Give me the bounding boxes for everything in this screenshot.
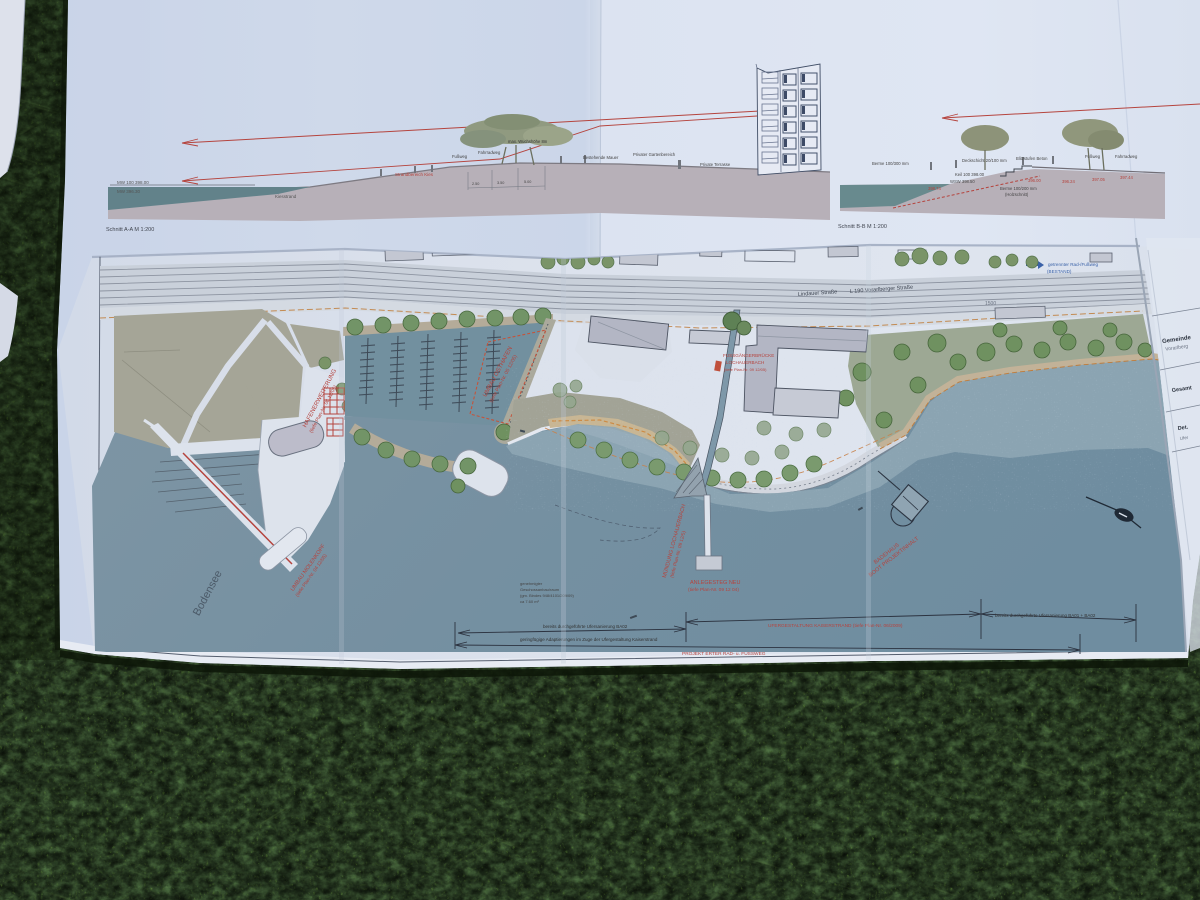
svg-text:(tiefe Plan-Nr. 09 12 04): (tiefe Plan-Nr. 09 12 04): [688, 587, 739, 593]
svg-text:(BESTAND): (BESTAND): [1047, 269, 1072, 274]
svg-text:ca 7.60 m²: ca 7.60 m²: [520, 599, 540, 604]
svg-text:Strandbereich Kies: Strandbereich Kies: [395, 172, 434, 177]
svg-text:Schnitt A-A M 1:200: Schnitt A-A M 1:200: [106, 227, 154, 233]
svg-text:396.00: 396.00: [1028, 178, 1041, 183]
svg-text:Geschossanbau/raum: Geschossanbau/raum: [520, 587, 560, 592]
svg-text:2.50: 2.50: [472, 182, 479, 186]
svg-text:Schnitt B-B M 1:200: Schnitt B-B M 1:200: [838, 224, 887, 230]
svg-text:ANLEGESTEG NEU: ANLEGESTEG NEU: [690, 580, 740, 586]
svg-text:5.00: 5.00: [524, 180, 531, 184]
svg-text:LOCHAUERBACH: LOCHAUERBACH: [726, 360, 764, 365]
svg-text:(tiefe Plan-Nr. 09 12/05): (tiefe Plan-Nr. 09 12/05): [724, 367, 767, 372]
svg-text:Keil 100 398.00: Keil 100 398.00: [955, 172, 985, 177]
svg-text:Fußweg: Fußweg: [452, 154, 468, 159]
svg-text:MW 100 398.00: MW 100 398.00: [117, 180, 149, 185]
svg-text:max. Wuchshöhe 8m: max. Wuchshöhe 8m: [508, 139, 548, 144]
svg-text:398.74: 398.74: [928, 186, 941, 191]
svg-text:Privater Gartenbereich: Privater Gartenbereich: [633, 152, 676, 157]
svg-text:FUSSGÄNGERBRÜCKE: FUSSGÄNGERBRÜCKE: [723, 352, 774, 358]
svg-text:(Holzschnitt): (Holzschnitt): [1005, 192, 1029, 197]
svg-text:Kiesstrand: Kiesstrand: [275, 194, 297, 199]
svg-text:Berme 100/300 mm: Berme 100/300 mm: [872, 161, 909, 166]
svg-text:Fahrradweg: Fahrradweg: [1115, 154, 1138, 159]
svg-text:(gm. Bindes 948/4101/209/09): (gm. Bindes 948/4101/209/09): [520, 593, 574, 598]
svg-text:3.50: 3.50: [497, 181, 504, 185]
svg-text:1500: 1500: [985, 301, 996, 307]
svg-text:Fußweg: Fußweg: [1085, 154, 1101, 159]
svg-text:UFERGESTALTUNG KAISERSTRAND (t: UFERGESTALTUNG KAISERSTRAND (tiefe Plan-…: [768, 623, 903, 629]
svg-text:397.44: 397.44: [1120, 175, 1133, 180]
svg-text:396.24: 396.24: [1062, 179, 1075, 184]
svg-text:Private Terrasse: Private Terrasse: [700, 162, 731, 167]
svg-text:397.05: 397.05: [1092, 177, 1105, 182]
svg-text:PROJEKT ERTER RAD- u. FUSSWEG: PROJEKT ERTER RAD- u. FUSSWEG: [682, 651, 766, 657]
svg-text:geringfügige Adaptierungen im: geringfügige Adaptierungen im Zuge der U…: [520, 637, 658, 642]
svg-text:bereits durchgeführte Ufersani: bereits durchgeführte Ufersanierung BA02: [543, 624, 628, 629]
svg-text:genehmigter: genehmigter: [520, 581, 543, 586]
svg-text:getrennter Rad-/Fußweg: getrennter Rad-/Fußweg: [1048, 262, 1098, 267]
svg-text:Blitzstufen Beton: Blitzstufen Beton: [1016, 156, 1048, 161]
svg-text:Deckschicht 20/100 mm: Deckschicht 20/100 mm: [962, 158, 1007, 163]
svg-text:Berme 100/200 mm: Berme 100/200 mm: [1000, 186, 1037, 191]
svg-text:Fahrradweg: Fahrradweg: [478, 150, 501, 155]
svg-text:WSW 398.50: WSW 398.50: [950, 179, 975, 184]
svg-text:MW 396.30: MW 396.30: [117, 189, 141, 194]
svg-text:Bestehende Mauer: Bestehende Mauer: [583, 155, 619, 160]
svg-text:bereits durchgeführte Ufersani: bereits durchgeführte Ufersanierung BA01…: [995, 613, 1096, 618]
